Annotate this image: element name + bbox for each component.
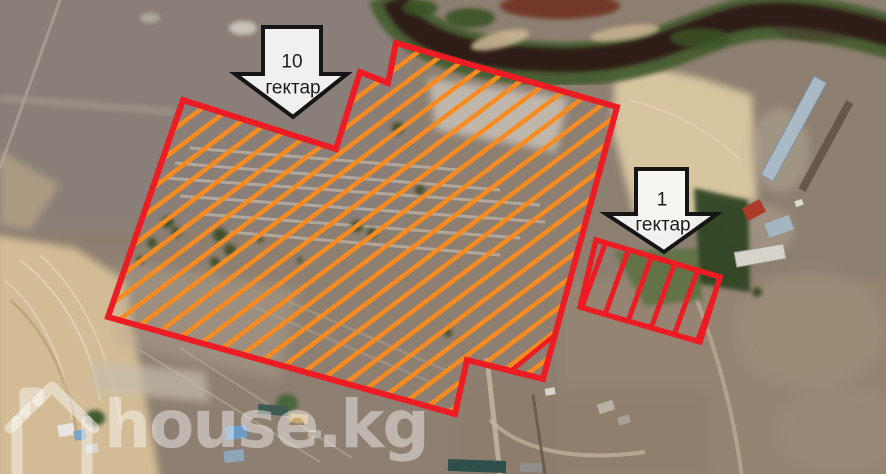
satellite-map-image	[0, 0, 886, 474]
satellite-map: 10 гектар 1 гектар house.kg	[0, 0, 886, 474]
